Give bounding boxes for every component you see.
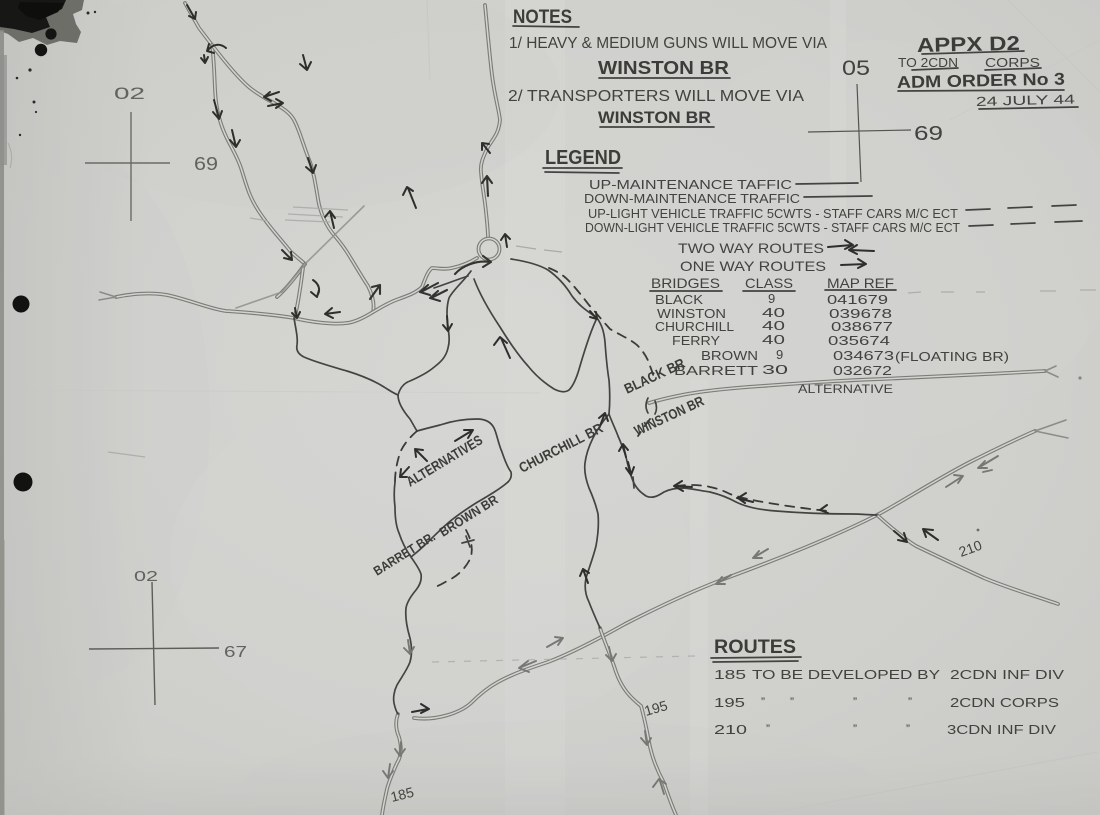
- svg-text:”: ”: [853, 722, 857, 736]
- svg-text:05: 05: [842, 57, 870, 80]
- svg-text:MAP REF: MAP REF: [827, 275, 894, 291]
- svg-text:(FLOATING BR): (FLOATING BR): [895, 349, 1009, 364]
- svg-text:CLASS: CLASS: [745, 275, 793, 291]
- svg-text:UP-MAINTENANCE TAFFIC: UP-MAINTENANCE TAFFIC: [589, 177, 792, 192]
- svg-text:UP-LIGHT VEHICLE TRAFFIC 5CWT: UP-LIGHT VEHICLE TRAFFIC 5CWTS - STAFF C…: [588, 207, 958, 221]
- svg-text:02: 02: [114, 84, 145, 103]
- svg-text:67: 67: [224, 644, 247, 661]
- svg-text:195: 195: [714, 695, 745, 710]
- svg-text:WINSTON BR: WINSTON BR: [598, 58, 729, 78]
- svg-text:038677: 038677: [831, 319, 893, 334]
- svg-text:”: ”: [766, 722, 770, 736]
- svg-text:2/ TRANSPORTERS WILL MOVE VIA: 2/ TRANSPORTERS WILL MOVE VIA: [508, 88, 804, 105]
- svg-text:WINSTON BR: WINSTON BR: [598, 108, 711, 127]
- svg-text:ALTERNATIVE: ALTERNATIVE: [798, 382, 893, 396]
- svg-text:30: 30: [762, 362, 788, 377]
- svg-text:1/ HEAVY & MEDIUM GUNS WILL MO: 1/ HEAVY & MEDIUM GUNS WILL MOVE VIA: [509, 35, 827, 52]
- svg-text:ROUTES: ROUTES: [714, 637, 796, 658]
- svg-text:”: ”: [853, 695, 857, 709]
- svg-text:”: ”: [761, 695, 765, 709]
- svg-text:FERRY: FERRY: [672, 333, 720, 348]
- svg-text:ONE WAY ROUTES: ONE WAY ROUTES: [680, 258, 826, 274]
- svg-text:CHURCHILL: CHURCHILL: [655, 319, 734, 334]
- svg-text:24 JULY 44: 24 JULY 44: [976, 91, 1075, 109]
- svg-text:9: 9: [768, 291, 775, 306]
- svg-text:NOTES: NOTES: [513, 7, 572, 28]
- svg-text:LEGEND: LEGEND: [545, 147, 621, 169]
- svg-text:DOWN-MAINTENANCE TRAFFIC: DOWN-MAINTENANCE TRAFFIC: [584, 191, 800, 206]
- svg-text:”: ”: [906, 722, 910, 736]
- svg-text:69: 69: [194, 154, 218, 174]
- svg-text:BRIDGES: BRIDGES: [651, 275, 720, 291]
- svg-text:041679: 041679: [827, 292, 888, 307]
- svg-text:9: 9: [776, 347, 783, 362]
- svg-text:”: ”: [908, 695, 912, 709]
- svg-text:69: 69: [914, 123, 943, 145]
- svg-text:032672: 032672: [833, 363, 892, 378]
- svg-text:2CDN CORPS: 2CDN CORPS: [950, 695, 1059, 710]
- svg-text:”: ”: [790, 695, 794, 709]
- svg-text:02: 02: [134, 568, 158, 585]
- svg-text:TWO WAY ROUTES: TWO WAY ROUTES: [678, 240, 824, 256]
- svg-text:034673: 034673: [833, 348, 894, 363]
- svg-text:TO BE DEVELOPED BY: TO BE DEVELOPED BY: [752, 667, 940, 682]
- svg-text:2CDN INF DIV: 2CDN INF DIV: [950, 667, 1064, 682]
- svg-text:BLACK: BLACK: [655, 292, 703, 307]
- svg-text:210: 210: [714, 722, 747, 737]
- svg-text:40: 40: [762, 318, 785, 333]
- svg-text:DOWN-LIGHT VEHICLE TRAFFIC 5C: DOWN-LIGHT VEHICLE TRAFFIC 5CWTS - STAFF…: [585, 221, 960, 235]
- svg-text:40: 40: [762, 332, 785, 347]
- svg-text:ADM ORDER No 3: ADM ORDER No 3: [897, 69, 1065, 92]
- svg-text:BROWN: BROWN: [701, 348, 758, 363]
- svg-text:BARRETT: BARRETT: [674, 363, 758, 378]
- svg-text:185: 185: [714, 667, 746, 682]
- svg-text:3CDN INF DIV: 3CDN INF DIV: [947, 722, 1056, 737]
- svg-text:035674: 035674: [828, 333, 890, 348]
